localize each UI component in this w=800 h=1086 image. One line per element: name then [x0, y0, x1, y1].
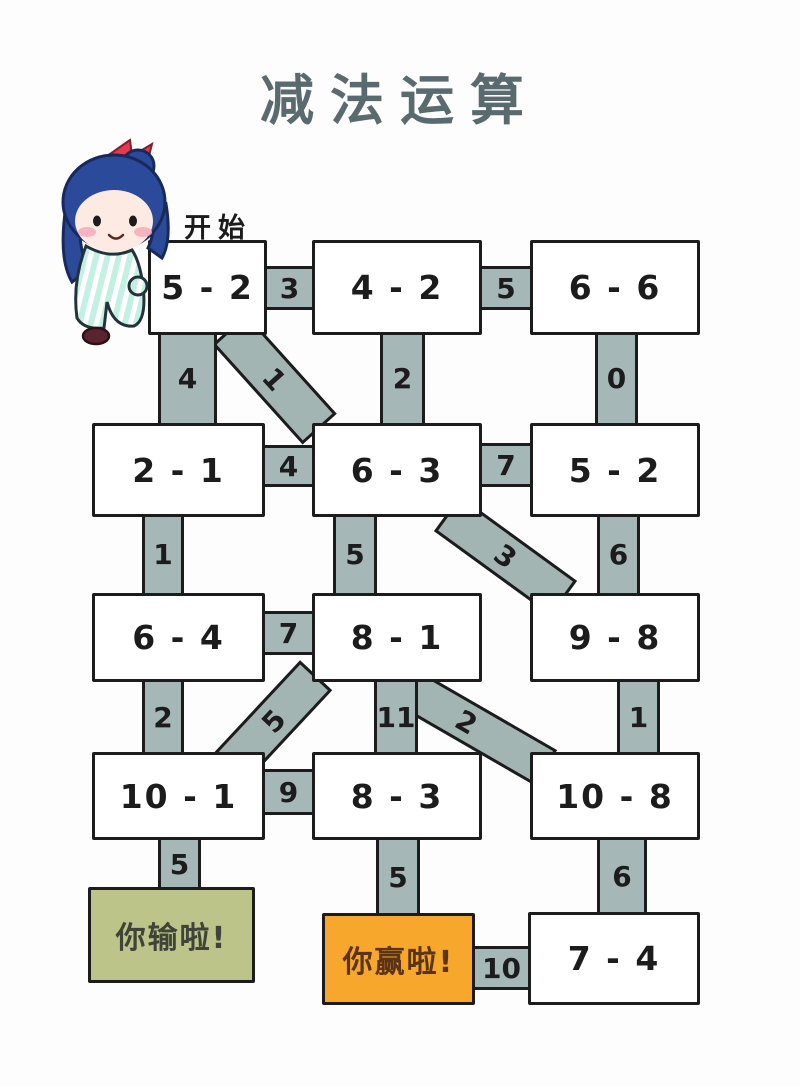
- path-value: 6: [609, 538, 628, 571]
- problem-box-10-8[interactable]: 10 - 8: [530, 752, 700, 840]
- path-value: 5: [388, 861, 407, 894]
- path-value: 7: [279, 617, 298, 650]
- problem-text: 8 - 1: [351, 618, 444, 657]
- problem-text: 10 - 8: [556, 777, 674, 816]
- path-value: 3: [280, 272, 299, 305]
- path-value: 10: [482, 952, 521, 985]
- problem-text: 6 - 6: [569, 268, 662, 307]
- problem-box-6-4[interactable]: 6 - 4: [92, 593, 265, 682]
- path-2-1-to-6-3: 4: [259, 445, 318, 487]
- path-5-2-to-4-2: 3: [261, 266, 318, 310]
- path-value: 2: [450, 703, 483, 741]
- problem-box-9-8[interactable]: 9 - 8: [530, 593, 700, 682]
- path-6-6-to-5-2: 0: [595, 329, 638, 428]
- page-title: 减法运算: [0, 56, 800, 135]
- path-value: 1: [256, 361, 294, 398]
- path-win-to-7-4: 10: [469, 946, 534, 990]
- path-value: 3: [488, 537, 523, 575]
- start-label: 开始: [184, 206, 252, 245]
- path-6-3-to-5-2: 7: [476, 443, 536, 487]
- problem-box-2-1[interactable]: 2 - 1: [92, 423, 265, 517]
- path-value: 2: [153, 701, 172, 734]
- problem-text: 6 - 4: [132, 618, 225, 657]
- path-value: 5: [255, 703, 292, 740]
- path-value: 4: [178, 362, 197, 395]
- path-6-4-to-10-1: 2: [142, 677, 184, 758]
- path-value: 0: [607, 362, 626, 395]
- path-value: 7: [496, 449, 515, 482]
- path-5-2-to-9-8: 6: [597, 511, 640, 598]
- problem-text: 4 - 2: [351, 268, 444, 307]
- path-value: 6: [612, 860, 631, 893]
- path-value: 2: [393, 362, 412, 395]
- problem-box-5-2[interactable]: 5 - 2: [530, 423, 700, 517]
- problem-box-10-1[interactable]: 10 - 1: [92, 752, 265, 840]
- lose-text: 你输啦!: [116, 913, 228, 957]
- path-4-2-to-6-3: 2: [380, 329, 425, 428]
- path-value: 5: [496, 272, 515, 305]
- path-10-1-to-lose: 5: [158, 835, 201, 893]
- path-value: 5: [170, 848, 189, 881]
- problem-box-8-1[interactable]: 8 - 1: [312, 593, 482, 682]
- problem-box-4-2[interactable]: 4 - 2: [312, 240, 482, 335]
- path-value: 5: [345, 538, 364, 571]
- win-box[interactable]: 你赢啦!: [322, 913, 475, 1005]
- problem-text: 8 - 3: [351, 777, 444, 816]
- path-value: 4: [279, 450, 298, 483]
- problem-text: 9 - 8: [569, 618, 662, 657]
- girl-character-illustration: [50, 136, 190, 350]
- path-2-1-to-6-4: 1: [142, 511, 184, 598]
- problem-text: 5 - 2: [569, 451, 662, 490]
- problem-text: 6 - 3: [351, 451, 444, 490]
- path-6-3-to-8-1: 5: [333, 511, 377, 598]
- problem-box-6-3[interactable]: 6 - 3: [312, 423, 482, 517]
- problem-box-8-3[interactable]: 8 - 3: [312, 752, 482, 840]
- lose-box[interactable]: 你输啦!: [88, 887, 255, 983]
- problem-text: 7 - 4: [568, 939, 661, 978]
- maze-board: 减法运算 开始 1 3 5 2 3 5 4 7 7 9 10 4 2 0 1: [0, 0, 800, 1086]
- path-4-2-to-6-6: 5: [476, 266, 536, 310]
- path-9-8-to-10-8: 1: [617, 677, 660, 758]
- path-10-8-to-7-4: 6: [597, 835, 647, 918]
- problem-box-7-4[interactable]: 7 - 4: [528, 912, 700, 1005]
- path-10-1-to-8-3: 9: [259, 769, 318, 815]
- path-value: 1: [629, 701, 648, 734]
- path-8-1-to-8-3: 11: [374, 677, 418, 758]
- path-8-3-to-win: 5: [376, 835, 420, 919]
- path-value: 1: [153, 538, 172, 571]
- problem-box-6-6[interactable]: 6 - 6: [530, 240, 700, 335]
- problem-text: 2 - 1: [132, 451, 225, 490]
- win-text: 你赢啦!: [343, 937, 455, 981]
- problem-text: 10 - 1: [120, 777, 238, 816]
- path-6-4-to-8-1: 7: [259, 611, 318, 655]
- path-value: 11: [377, 701, 416, 734]
- path-value: 9: [279, 776, 298, 809]
